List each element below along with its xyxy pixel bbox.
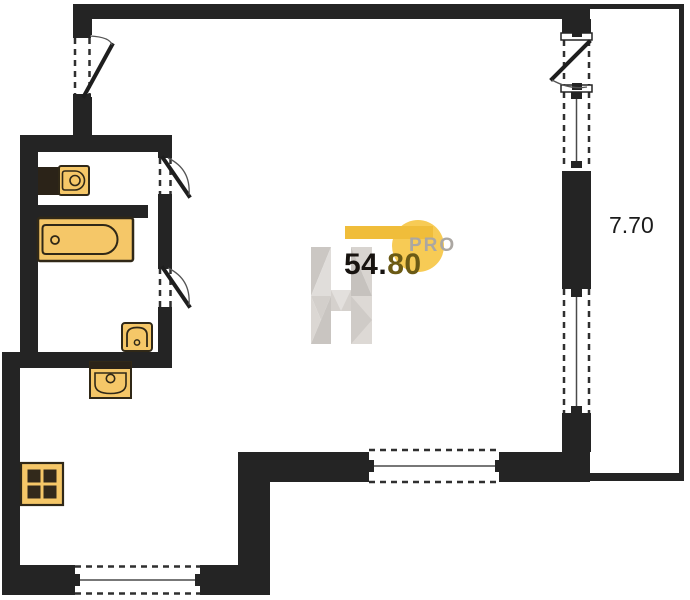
kitchen-sink-icon (90, 362, 131, 398)
wall-top (73, 4, 590, 19)
balcony-wall-right (679, 4, 684, 481)
stove-icon (21, 463, 63, 505)
wall-bottom-main-left (238, 452, 369, 482)
wall-right-pillar-bottom (562, 413, 591, 452)
bathtub-icon (38, 218, 133, 261)
wall-bottom-main-right (499, 452, 590, 482)
apartment-floor-plan: 54.80 PRO 7.70 (0, 0, 690, 600)
opening-dashes (75, 38, 589, 594)
bathroom-wall-top (20, 135, 172, 152)
total-area-main: 54. (344, 248, 387, 281)
bathroom-wall-right-mid (158, 200, 172, 263)
toilet-icon (122, 323, 152, 351)
balcony-wall-bottom (590, 473, 684, 481)
bathroom-wall-divider (38, 205, 148, 218)
casement-leaf (552, 42, 589, 79)
entry-door-leaf (84, 45, 112, 96)
wash-basin-icon (38, 166, 89, 195)
wall-left-upper (20, 135, 38, 368)
watermark-pro-label: PRO (409, 235, 456, 257)
bath-door1-leaf (163, 158, 189, 196)
wall-left-entry-lower (73, 97, 92, 135)
balcony-wall-top (590, 4, 684, 9)
casement-window-top-right (561, 31, 592, 92)
wall-bottom-kitchen-left (2, 565, 75, 595)
bath-door2-leaf (163, 268, 189, 306)
wall-right-pillar-mid (562, 171, 591, 289)
balcony-dimension-label: 7.70 (609, 212, 654, 239)
bathroom-wall-bottom (2, 352, 172, 368)
wall-left-lower (2, 352, 20, 595)
floor-plan-drawing (0, 0, 690, 600)
